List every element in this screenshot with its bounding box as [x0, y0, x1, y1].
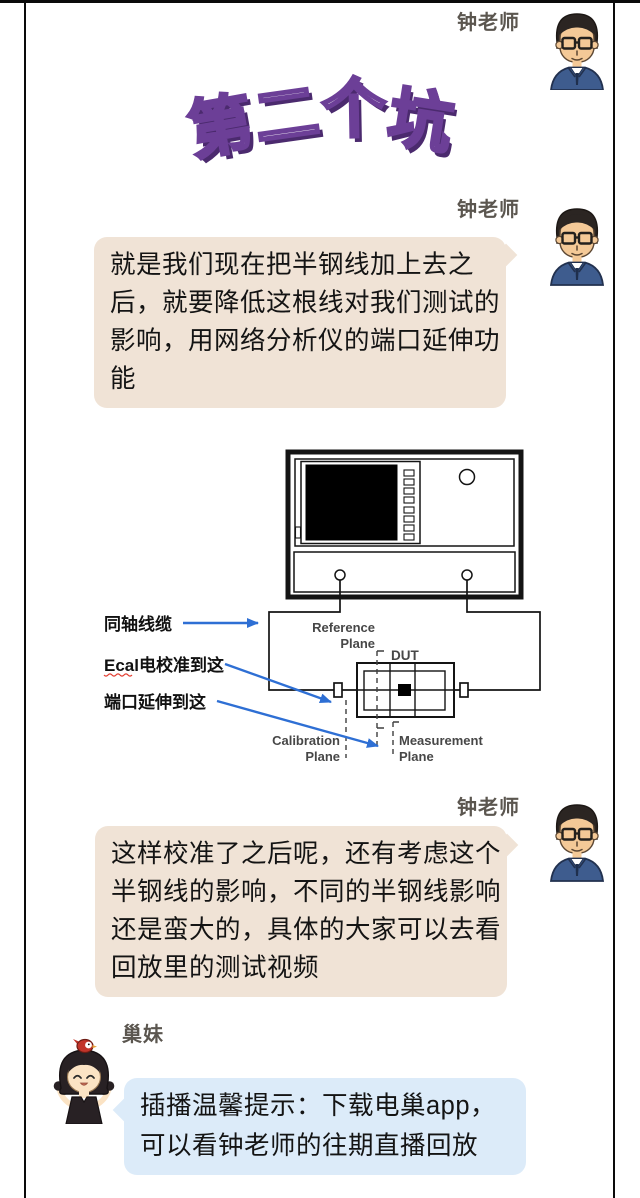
message-line: 就是我们现在把半钢线加上去之 [110, 246, 490, 284]
dut-box [357, 663, 454, 717]
message3-speaker-name: 巢妹 [122, 1018, 164, 1047]
message-line: 可以看钟老师的往期直播回放 [140, 1126, 510, 1166]
spellcheck-underline [104, 674, 132, 676]
message-line: 半钢线的影响，不同的半钢线影响 [111, 873, 491, 911]
frame-left-border [24, 0, 26, 1198]
analyzer-screen [306, 465, 398, 541]
diagram-callout-labels: 同轴线缆 Ecal电校准到这 端口延伸到这 [104, 614, 224, 712]
message2-bubble: 这样校准了之后呢，还有考虑这个 半钢线的影响，不同的半钢线影响 还是蛮大的，具体… [95, 826, 507, 997]
message3-bubble: 插播温馨提示：下载电巢app， 可以看钟老师的往期直播回放 [124, 1078, 526, 1175]
dut-left-connector [334, 683, 342, 697]
teacher-avatar-icon [545, 798, 609, 887]
message-line: 还是蛮大的，具体的大家可以去看 [111, 911, 491, 949]
frame-right-border [613, 0, 615, 1198]
message-line: 这样校准了之后呢，还有考虑这个 [111, 835, 491, 873]
svg-text:Plane: Plane [305, 749, 340, 764]
coax-cable-label: 同轴线缆 [104, 614, 172, 634]
message-line: 插播温馨提示：下载电巢app， [140, 1086, 510, 1126]
reference-plane-label: Reference [312, 620, 375, 635]
calibration-plane-label: Calibration [272, 733, 340, 748]
message-line: 回放里的测试视频 [111, 949, 491, 987]
frame-top-border [0, 0, 640, 3]
message-line: 影响，用网络分析仪的端口延伸功 [110, 322, 490, 360]
assistant-avatar-icon [48, 1036, 120, 1129]
title-char: 个 [321, 57, 387, 150]
message2-speaker-name: 钟老师 [420, 791, 520, 820]
port-extension-label: 端口延伸到这 [104, 692, 206, 712]
dut-right-connector [460, 683, 468, 697]
teacher-avatar-icon [545, 202, 609, 291]
message-line: 能 [110, 360, 490, 398]
analyzer-knob [460, 470, 475, 485]
message1-bubble: 就是我们现在把半钢线加上去之 后，就要降低这根线对我们测试的 影响，用网络分析仪… [94, 237, 506, 408]
ecal-label: Ecal电校准到这 [104, 655, 224, 675]
ecal-arrow [225, 664, 331, 702]
title-char: 第 [180, 71, 259, 173]
message1-speaker-name: 钟老师 [420, 193, 520, 222]
top-speaker-name: 钟老师 [420, 6, 520, 35]
svg-text:Plane: Plane [399, 749, 434, 764]
dut-die [398, 684, 411, 696]
analyzer-port2 [462, 570, 472, 580]
comic-chat-panel: 钟老师 第 二 个 坑 钟老师 [0, 0, 640, 1198]
svg-text:Plane: Plane [340, 636, 375, 651]
analyzer-port1 [335, 570, 345, 580]
network-analyzer-diagram: Reference Plane DUT Calibration Plane Me… [60, 444, 560, 779]
measurement-plane-label: Measurement [399, 733, 483, 748]
title-char: 二 [248, 60, 324, 160]
title-char: 坑 [383, 66, 461, 167]
dut-label: DUT [391, 648, 419, 663]
analyzer-body [288, 452, 521, 597]
page-title: 第 二 个 坑 [0, 66, 640, 158]
message-line: 后，就要降低这根线对我们测试的 [110, 284, 490, 322]
